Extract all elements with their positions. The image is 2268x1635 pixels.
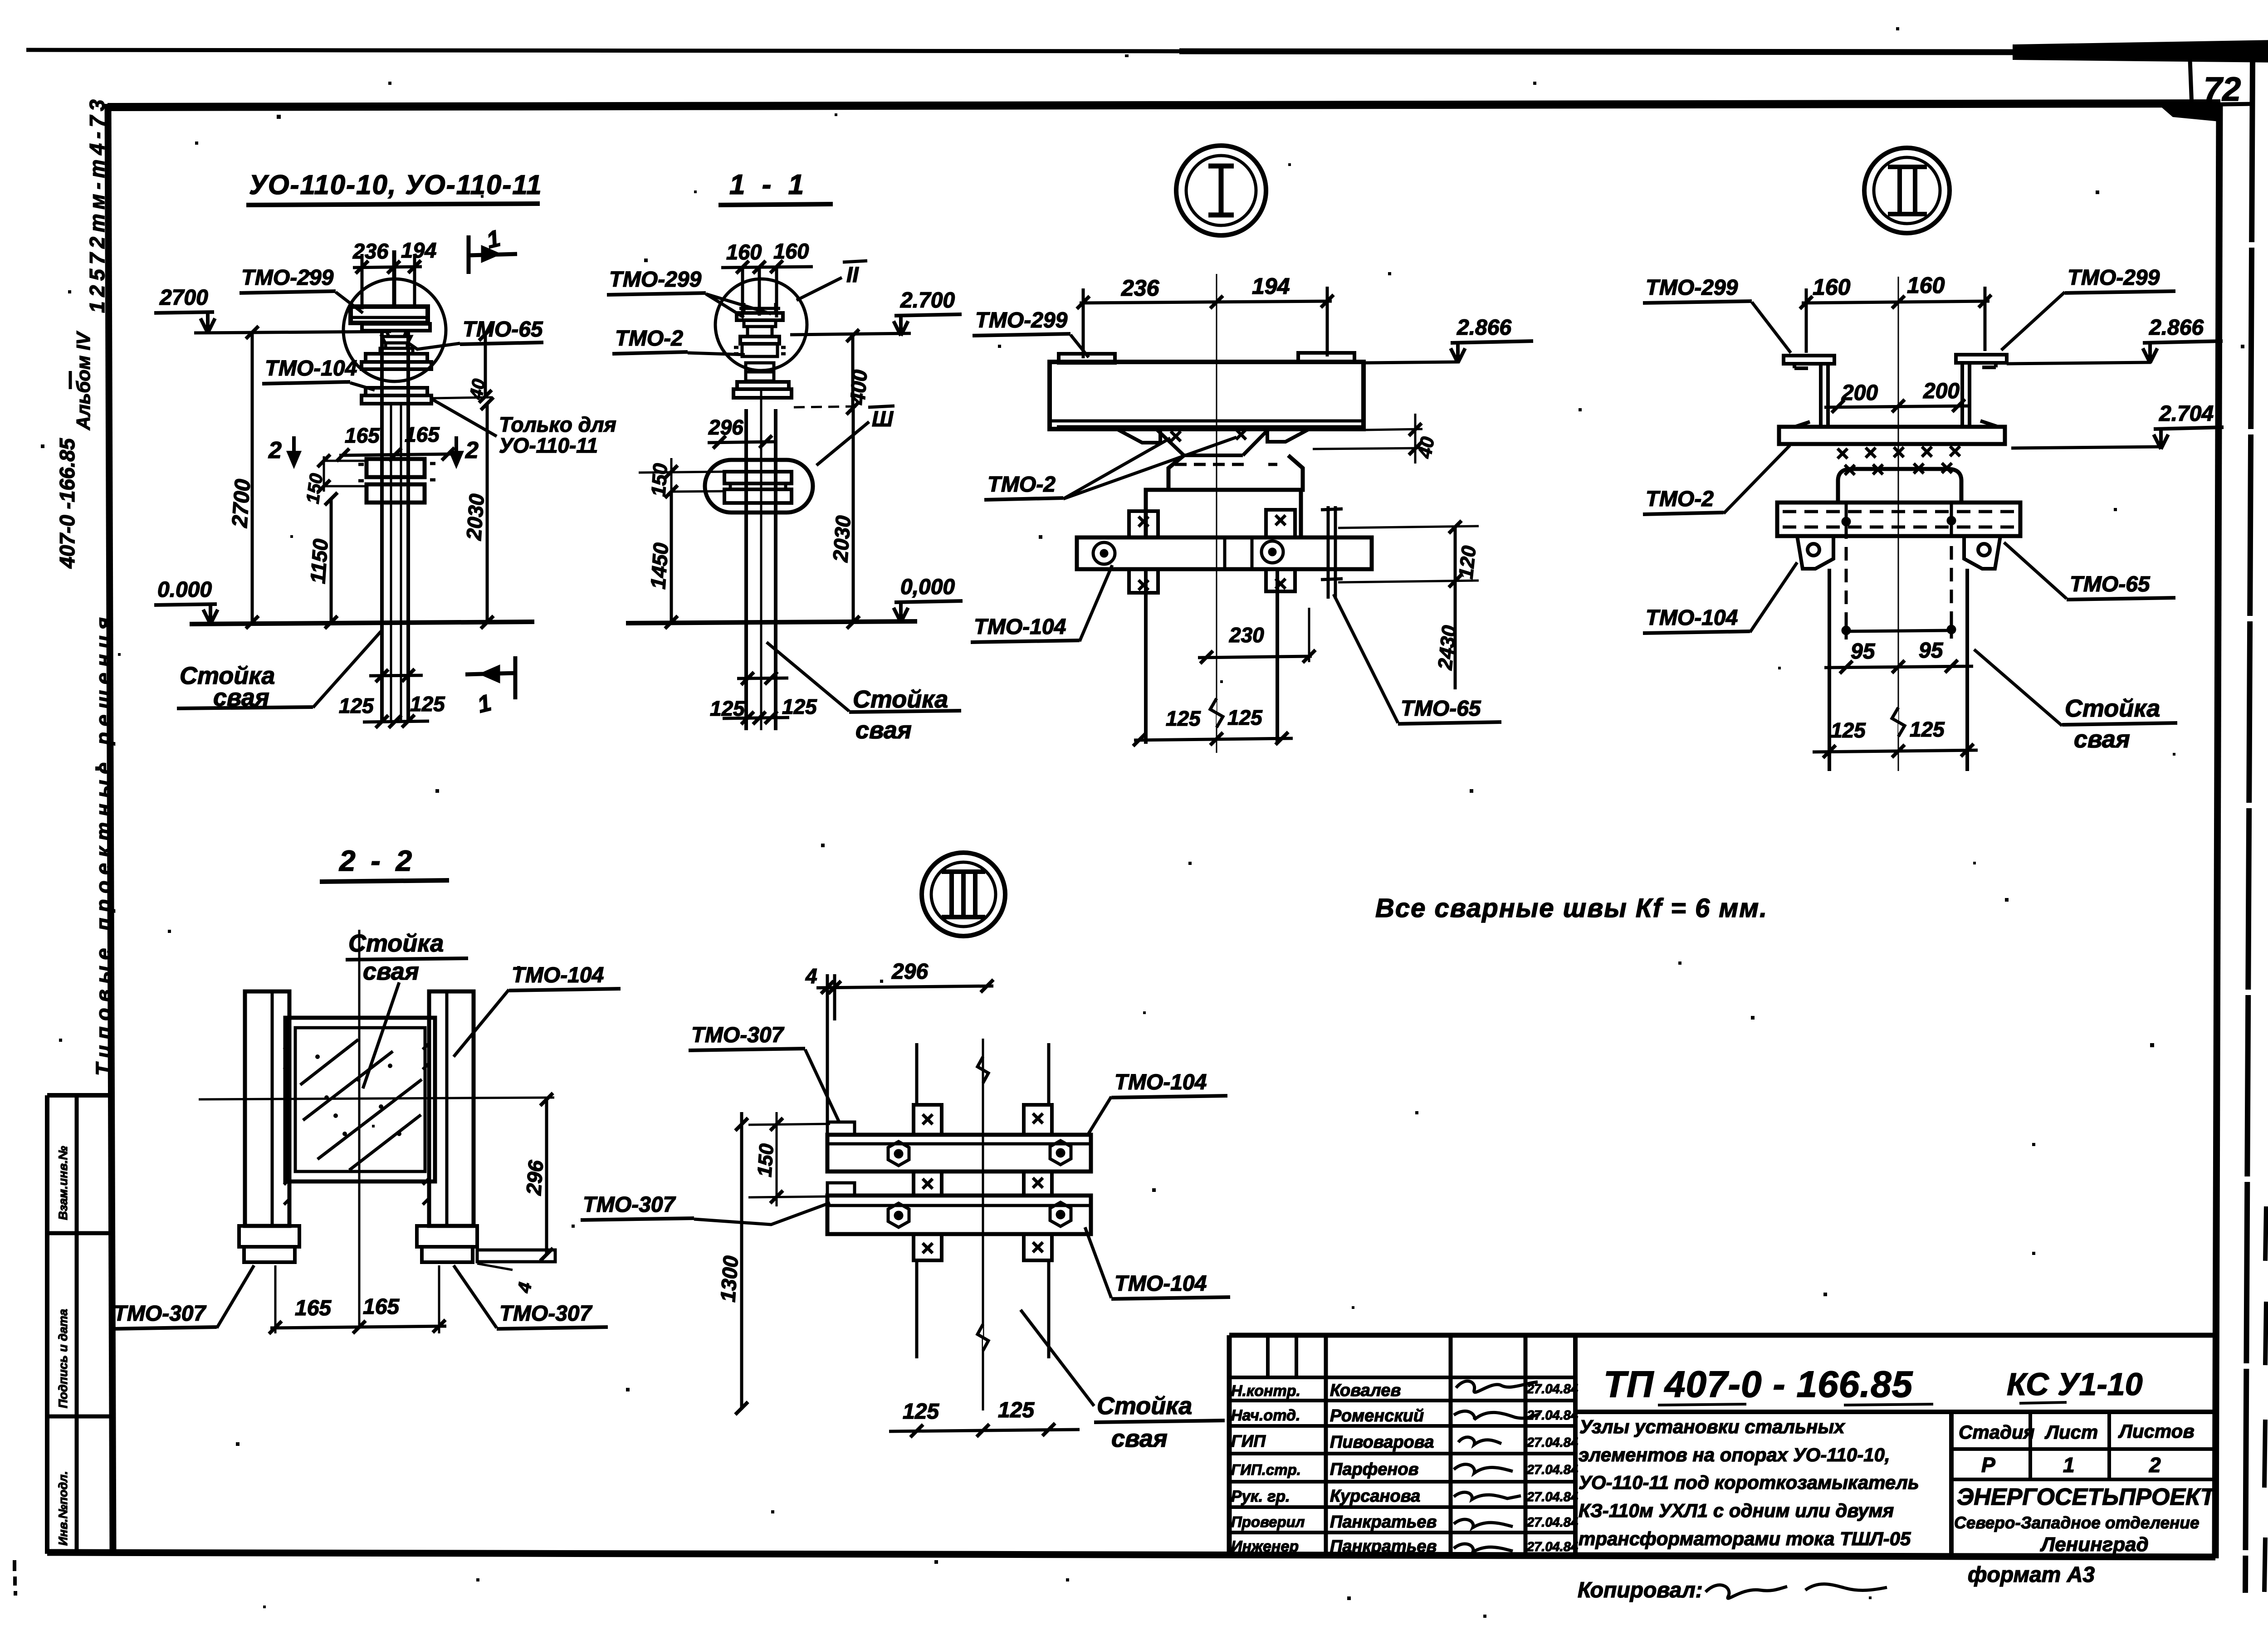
- svg-text:165: 165: [405, 423, 440, 446]
- svg-text:УО-110-11: УО-110-11: [499, 434, 598, 457]
- svg-text:150: 150: [647, 463, 672, 498]
- svg-text:95: 95: [1851, 639, 1876, 664]
- svg-text:ТМО-307: ТМО-307: [691, 1023, 785, 1047]
- svg-text:160: 160: [1907, 273, 1945, 298]
- svg-text:165: 165: [363, 1295, 400, 1319]
- svg-text:200: 200: [1841, 381, 1878, 405]
- svg-text:125: 125: [1166, 707, 1201, 730]
- svg-text:1 - 1: 1 - 1: [729, 169, 808, 200]
- svg-text:2: 2: [268, 437, 282, 464]
- svg-text:Подпись и дата: Подпись и дата: [56, 1309, 70, 1408]
- svg-text:КЗ-110м УХЛ1 с одним или двумя: КЗ-110м УХЛ1 с одним или двумя: [1579, 1500, 1894, 1521]
- svg-text:Взам.инв.№: Взам.инв.№: [56, 1146, 70, 1220]
- svg-text:Роменский: Роменский: [1330, 1406, 1424, 1425]
- svg-text:160: 160: [726, 240, 762, 264]
- svg-text:Курсанова: Курсанова: [1330, 1487, 1420, 1506]
- svg-text:1300: 1300: [716, 1255, 743, 1303]
- svg-text:Только для: Только для: [499, 413, 616, 436]
- svg-text:200: 200: [1923, 379, 1960, 403]
- svg-text:125: 125: [1910, 717, 1945, 741]
- svg-text:150: 150: [303, 472, 327, 505]
- svg-text:Панкратьев: Панкратьев: [1330, 1513, 1437, 1532]
- svg-text:ТМО-2: ТМО-2: [615, 327, 683, 351]
- svg-text:Н.контр.: Н.контр.: [1231, 1382, 1300, 1400]
- svg-text:Стойка: Стойка: [348, 930, 444, 957]
- svg-text:12572тм-т4-73: 12572тм-т4-73: [85, 95, 109, 313]
- svg-text:Стойка: Стойка: [2065, 695, 2160, 722]
- svg-text:Узлы установки стальных: Узлы установки стальных: [1579, 1416, 1845, 1437]
- svg-text:трансформаторами тока ТШЛ-05: трансформаторами тока ТШЛ-05: [1579, 1528, 1911, 1549]
- svg-text:2.700: 2.700: [900, 288, 955, 312]
- svg-text:ТМО-299: ТМО-299: [609, 268, 702, 292]
- svg-text:ТМО-299: ТМО-299: [2068, 266, 2160, 290]
- svg-text:40: 40: [466, 377, 489, 401]
- svg-text:125: 125: [410, 692, 445, 716]
- svg-text:свая: свая: [2074, 726, 2130, 753]
- svg-text:27.04.84: 27.04.84: [1526, 1382, 1578, 1396]
- svg-text:296: 296: [522, 1159, 547, 1196]
- svg-text:Ленинград: Ленинград: [2040, 1533, 2149, 1556]
- svg-text:ТМО-104: ТМО-104: [1646, 606, 1738, 630]
- svg-text:Копировал:: Копировал:: [1578, 1578, 1703, 1602]
- svg-text:ТМО-104: ТМО-104: [1114, 1272, 1207, 1296]
- svg-text:ТМО-299: ТМО-299: [241, 266, 334, 290]
- svg-text:27.04.84: 27.04.84: [1526, 1435, 1578, 1450]
- svg-text:2 - 2: 2 - 2: [339, 844, 415, 877]
- svg-text:125: 125: [782, 695, 817, 718]
- svg-text:165: 165: [345, 424, 380, 447]
- svg-text:1150: 1150: [306, 538, 332, 585]
- svg-text:ТМО-307: ТМО-307: [113, 1302, 207, 1326]
- svg-text:296: 296: [708, 415, 743, 439]
- svg-text:КС У1-10: КС У1-10: [2007, 1367, 2143, 1402]
- svg-text:2030: 2030: [828, 515, 855, 563]
- svg-text:125: 125: [903, 1400, 939, 1424]
- svg-text:Панкратьев: Панкратьев: [1330, 1537, 1437, 1556]
- svg-text:ГИП.стр.: ГИП.стр.: [1231, 1461, 1301, 1478]
- svg-text:150: 150: [753, 1143, 778, 1178]
- svg-text:Нач.отд.: Нач.отд.: [1231, 1407, 1300, 1424]
- svg-text:ТМО-307: ТМО-307: [583, 1193, 676, 1217]
- svg-text:236: 236: [1121, 275, 1160, 301]
- svg-text:ТМО-104: ТМО-104: [512, 963, 604, 987]
- svg-text:160: 160: [773, 239, 809, 263]
- svg-text:Альбом IV: Альбом IV: [73, 331, 94, 430]
- svg-text:Листов: Листов: [2118, 1420, 2195, 1442]
- svg-text:элементов на опорах УО-110-10,: элементов на опорах УО-110-10,: [1579, 1444, 1890, 1465]
- svg-text:27.04.84: 27.04.84: [1526, 1515, 1578, 1530]
- svg-text:Ковалев: Ковалев: [1330, 1381, 1401, 1400]
- svg-text:407-0 -166.85: 407-0 -166.85: [55, 438, 79, 569]
- svg-text:Инженер: Инженер: [1231, 1538, 1299, 1555]
- svg-text:ТМО-2: ТМО-2: [1646, 487, 1714, 511]
- svg-text:Северо-Западное отделение: Северо-Западное отделение: [1954, 1513, 2200, 1532]
- svg-text:ТМО-299: ТМО-299: [975, 308, 1068, 332]
- svg-text:160: 160: [1813, 274, 1851, 300]
- svg-text:165: 165: [295, 1296, 332, 1320]
- svg-text:2430: 2430: [1434, 624, 1461, 671]
- svg-text:2030: 2030: [462, 493, 489, 542]
- svg-text:ТМО-2: ТМО-2: [987, 473, 1056, 497]
- svg-text:95: 95: [1919, 639, 1944, 663]
- svg-text:125: 125: [1227, 706, 1263, 729]
- svg-text:ТМО-65: ТМО-65: [463, 317, 543, 342]
- svg-text:2.704: 2.704: [2159, 402, 2214, 426]
- svg-text:2700: 2700: [228, 478, 255, 529]
- svg-text:свая: свая: [363, 958, 419, 985]
- svg-text:свая: свая: [855, 717, 912, 744]
- svg-text:125: 125: [1831, 718, 1866, 742]
- svg-text:27.04.84: 27.04.84: [1526, 1463, 1578, 1477]
- svg-text:Р: Р: [1981, 1453, 1995, 1477]
- svg-text:Ш: Ш: [872, 407, 894, 431]
- svg-text:Парфенов: Парфенов: [1330, 1460, 1419, 1479]
- svg-text:ТП 407-0 - 166.85: ТП 407-0 - 166.85: [1603, 1364, 1913, 1405]
- svg-text:ТМО-299: ТМО-299: [1646, 276, 1738, 300]
- svg-text:296: 296: [891, 960, 928, 984]
- svg-text:2: 2: [465, 437, 479, 464]
- svg-text:УО-110-11 под короткозамыкател: УО-110-11 под короткозамыкатель: [1579, 1472, 1919, 1493]
- svg-text:Лист: Лист: [2044, 1421, 2098, 1443]
- svg-text:Пивоварова: Пивоварова: [1330, 1433, 1434, 1452]
- svg-text:ТМО-104: ТМО-104: [265, 356, 357, 381]
- svg-text:120: 120: [1455, 544, 1480, 580]
- svg-text:УО-110-10, УО-110-11: УО-110-10, УО-110-11: [249, 170, 543, 200]
- svg-text:2.866: 2.866: [2149, 316, 2204, 340]
- svg-text:ТМО-65: ТМО-65: [1401, 697, 1481, 721]
- svg-text:27.04.84: 27.04.84: [1526, 1408, 1578, 1423]
- svg-text:194: 194: [1252, 273, 1290, 299]
- svg-text:ТМО-65: ТМО-65: [2070, 572, 2151, 596]
- svg-text:27.04.84: 27.04.84: [1526, 1540, 1578, 1554]
- svg-text:236: 236: [352, 239, 389, 263]
- svg-text:Рук. гр.: Рук. гр.: [1231, 1488, 1290, 1505]
- svg-text:Стойка: Стойка: [853, 686, 948, 713]
- svg-text:2.866: 2.866: [1457, 316, 1511, 340]
- svg-text:230: 230: [1229, 623, 1264, 647]
- svg-text:Инв.№подл.: Инв.№подл.: [56, 1471, 70, 1546]
- svg-text:свая: свая: [1111, 1425, 1168, 1452]
- svg-text:4: 4: [805, 964, 817, 988]
- svg-text:125: 125: [998, 1398, 1035, 1422]
- svg-text:Стадия: Стадия: [1959, 1421, 2034, 1443]
- svg-text:194: 194: [401, 238, 436, 262]
- svg-text:ТМО-104: ТМО-104: [1114, 1070, 1207, 1094]
- svg-text:II: II: [846, 263, 859, 287]
- svg-text:ЭНЕРГОСЕТЬПРОЕКТ: ЭНЕРГОСЕТЬПРОЕКТ: [1957, 1484, 2217, 1510]
- svg-text:Все сварные швы Кf = 6 мм.: Все сварные швы Кf = 6 мм.: [1375, 893, 1768, 923]
- svg-text:0.000: 0.000: [157, 578, 212, 602]
- svg-text:0,000: 0,000: [900, 575, 955, 599]
- svg-text:1450: 1450: [646, 542, 673, 590]
- svg-text:Типовые проектные решения: Типовые проектные решения: [92, 611, 115, 1076]
- svg-text:Стойка: Стойка: [1097, 1392, 1192, 1420]
- svg-text:1: 1: [2063, 1453, 2075, 1477]
- svg-text:ТМО-307: ТМО-307: [499, 1302, 593, 1326]
- svg-text:свая: свая: [213, 684, 269, 711]
- svg-text:формат А3: формат А3: [1968, 1563, 2095, 1587]
- svg-text:125: 125: [339, 694, 374, 717]
- svg-text:Проверил: Проверил: [1231, 1513, 1305, 1530]
- svg-text:27.04.84: 27.04.84: [1526, 1490, 1578, 1504]
- svg-text:40: 40: [1413, 435, 1438, 460]
- svg-text:ТМО-104: ТМО-104: [974, 615, 1066, 639]
- svg-text:2700: 2700: [159, 286, 208, 310]
- svg-text:2: 2: [2149, 1453, 2161, 1477]
- svg-text:ГИП: ГИП: [1231, 1432, 1266, 1450]
- svg-text:400: 400: [846, 369, 871, 406]
